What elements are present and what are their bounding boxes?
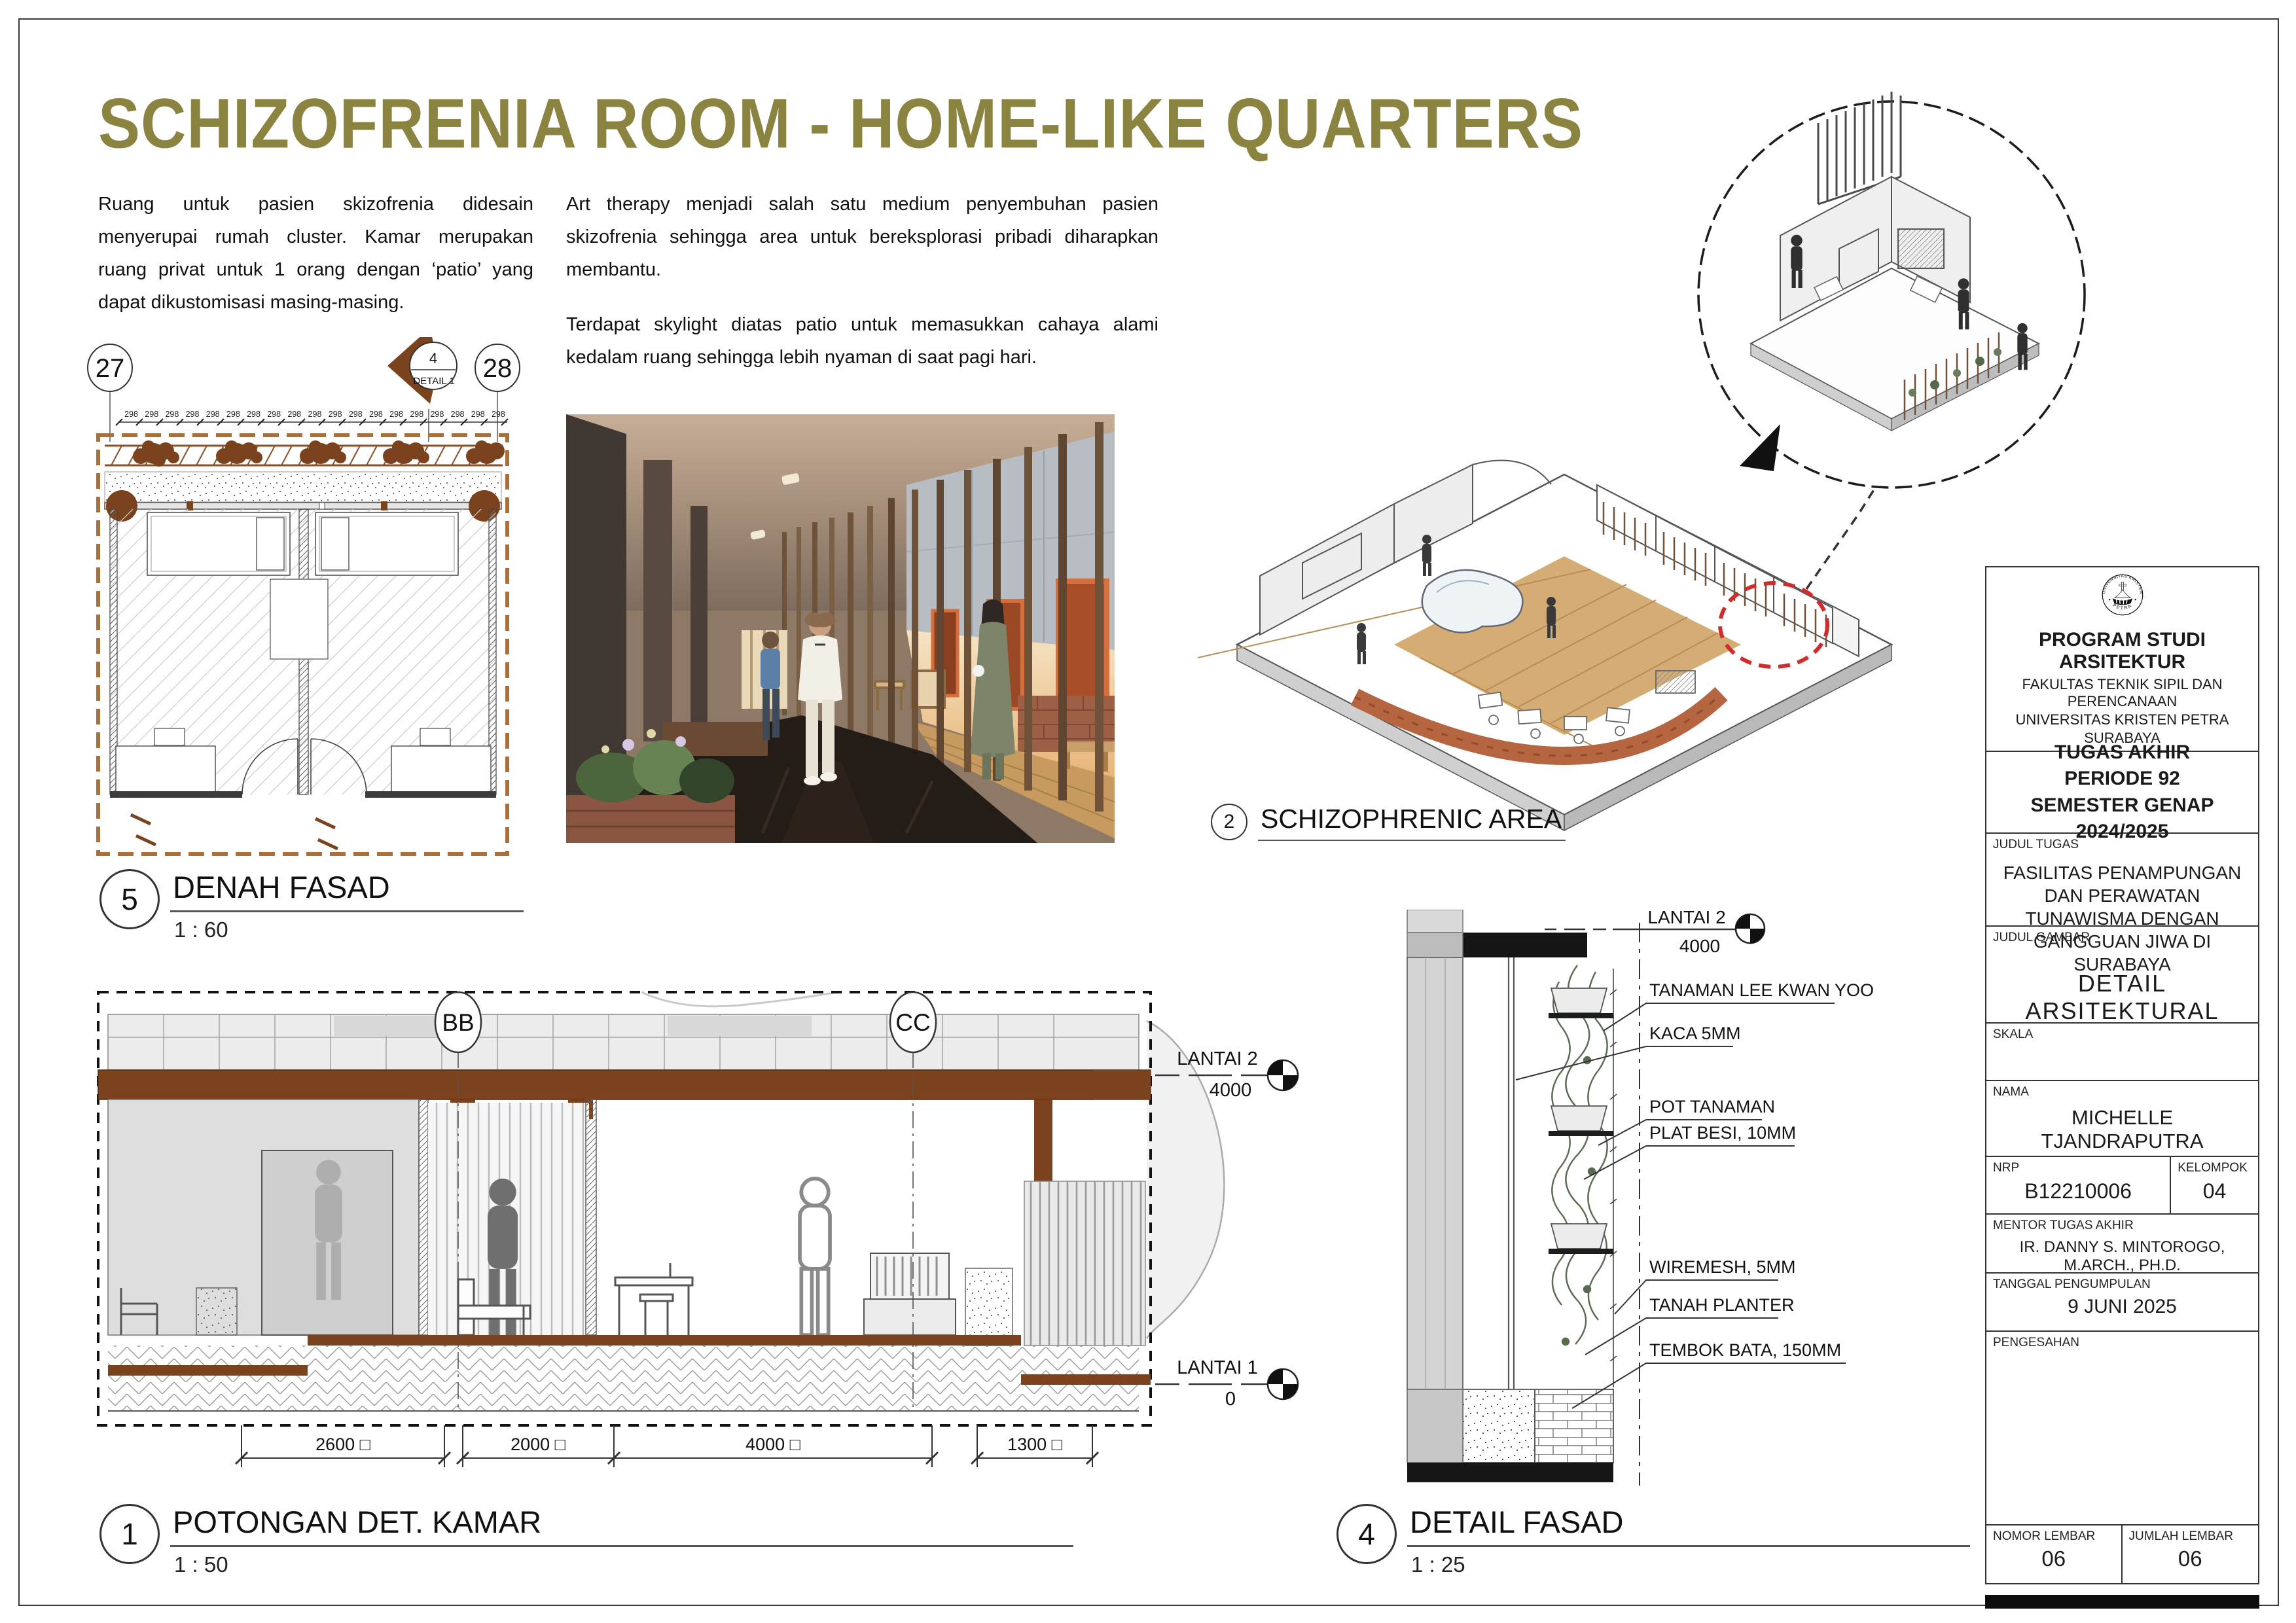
section-title-label: POTONGAN DET. KAMAR — [170, 1504, 1073, 1547]
facade-wall — [1407, 957, 1463, 1389]
section-floor — [108, 1335, 1151, 1411]
facade-title-scale: 1 : 25 — [1407, 1552, 1970, 1577]
titleblock-lembar: NOMOR LEMBAR 06 JUMLAH LEMBAR 06 — [1986, 1525, 2258, 1583]
facade-base — [1407, 1389, 1613, 1482]
assignment-line-1: TUGAS AKHIR — [2054, 740, 2190, 766]
label-jumlah-lembar: JUMLAH LEMBAR — [2129, 1529, 2252, 1544]
kelompok-value: 04 — [2178, 1179, 2251, 1204]
plan-wardrobe — [270, 579, 328, 659]
facade-callout-3: POT TANAMAN — [1649, 1097, 1775, 1117]
plan-title: 5 DENAH FASAD 1 : 60 — [99, 869, 524, 942]
plan-grid-bubble-right: 28 — [475, 344, 520, 391]
mentor-value: IR. DANNY S. MINTOROGO, M.ARCH., PH.D. — [1993, 1238, 2251, 1275]
section-level1-value: 0 — [1175, 1389, 1286, 1410]
svg-text:27: 27 — [96, 354, 125, 383]
nama-value: MICHELLE TJANDRAPUTRA — [1993, 1106, 2251, 1153]
label-nama: NAMA — [1993, 1085, 2251, 1099]
titleblock-nrp-kelompok: NRP B12210006 KELOMPOK 04 — [1986, 1157, 2258, 1215]
plan-top-dimensions: 2982982982982982982982982982982982982982… — [121, 410, 509, 419]
plan-bed-left — [147, 512, 290, 575]
facade-callout-2: KACA 5MM — [1649, 1024, 1741, 1044]
svg-text:CC: CC — [895, 1009, 930, 1036]
facade-title-label: DETAIL FASAD — [1407, 1504, 1970, 1547]
plan-dim-value: 298 — [203, 410, 223, 419]
plan-bushes — [133, 440, 505, 467]
intro-text-1: Ruang untuk pasien skizofrenia didesain … — [98, 188, 533, 319]
section-dim-3: 4000 □ — [708, 1435, 838, 1455]
interior-render-photo — [566, 414, 1115, 843]
label-skala: SKALA — [1993, 1027, 2251, 1042]
section-planter-column — [965, 1268, 1013, 1346]
plan-rooms — [110, 509, 496, 849]
titleblock-program: PROGRAM STUDI ARSITEKTUR — [1993, 629, 2251, 673]
svg-text:4: 4 — [429, 350, 437, 366]
facade-callout-6: TANAH PLANTER — [1649, 1295, 1795, 1315]
titleblock-institution: UNIVERSITAS KRISTEN PETRA PROGRAM STUDI … — [1986, 567, 2258, 752]
intro-paragraph-left: Ruang untuk pasien skizofrenia didesain … — [98, 188, 533, 342]
svg-text:28: 28 — [483, 354, 512, 383]
nrp-value: B12210006 — [1993, 1179, 2163, 1204]
intro-text-2: Art therapy menjadi salah satu medium pe… — [566, 188, 1158, 287]
plan-dim-value: 298 — [366, 410, 386, 419]
plan-title-number: 5 — [99, 869, 160, 929]
plan-dim-value: 298 — [406, 410, 427, 419]
facade-pots — [1549, 988, 1613, 1254]
university-logo: UNIVERSITAS KRISTEN PETRA — [2073, 571, 2172, 618]
section-dim-1: 2600 □ — [278, 1435, 408, 1455]
titleblock-faculty: FAKULTAS TEKNIK SIPIL DAN PERENCANAAN — [1993, 676, 2251, 710]
label-kelompok: KELOMPOK — [2178, 1161, 2251, 1175]
section-desk — [615, 1263, 692, 1335]
section-drawing: BB CC — [92, 982, 1335, 1499]
label-mentor: MENTOR TUGAS AKHIR — [1993, 1219, 2251, 1233]
facade-title: 4 DETAIL FASAD 1 : 25 — [1336, 1504, 1970, 1577]
presentation-board: SCHIZOFRENIA ROOM - HOME-LIKE QUARTERS R… — [0, 0, 2296, 1623]
titleblock-judul-tugas: JUDUL TUGAS FASILITAS PENAMPUNGAN DAN PE… — [1986, 834, 2258, 927]
plan-dim-value: 298 — [223, 410, 243, 419]
label-judul-tugas: JUDUL TUGAS — [1993, 838, 2251, 852]
plan-title-scale: 1 : 60 — [170, 918, 524, 942]
plan-dim-value: 298 — [468, 410, 488, 419]
facade-callout-1: TANAMAN LEE KWAN YOO — [1649, 980, 1874, 1001]
plan-dim-value: 298 — [325, 410, 346, 419]
section-right-fence — [1024, 1181, 1145, 1346]
plan-detail-marker: 4 DETAIL 1 — [387, 337, 457, 404]
facade-level-value: 4000 — [1644, 936, 1755, 957]
tanggal-value: 9 JUNI 2025 — [1993, 1296, 2251, 1318]
titleblock-tanggal: TANGGAL PENGUMPULAN 9 JUNI 2025 — [1986, 1274, 2258, 1332]
plan-corridor-marks — [131, 815, 338, 849]
section-tree-outline — [641, 992, 838, 1007]
titleblock-pengesahan: PENGESAHAN — [1986, 1332, 2258, 1525]
plan-title-label: DENAH FASAD — [170, 869, 524, 912]
assignment-line-2: PERIODE 92 — [2064, 766, 2180, 793]
plan-dim-value: 298 — [121, 410, 141, 419]
plan-dim-value: 298 — [141, 410, 162, 419]
titleblock-assignment: TUGAS AKHIR PERIODE 92 SEMESTER GENAP 20… — [1986, 752, 2258, 834]
facade-callout-7: TEMBOK BATA, 150MM — [1649, 1340, 1841, 1361]
jumlah-lembar-value: 06 — [2129, 1546, 2252, 1571]
section-title-number: 1 — [99, 1504, 160, 1564]
section-clerestory — [108, 1014, 1139, 1070]
plan-bed-right — [315, 512, 458, 575]
label-pengesahan: PENGESAHAN — [1993, 1336, 2251, 1350]
section-level2-name: LANTAI 2 — [1162, 1048, 1273, 1070]
plan-patio-strip — [105, 472, 501, 502]
plan-dim-value: 298 — [162, 410, 182, 419]
svg-text:DETAIL 1: DETAIL 1 — [413, 376, 454, 387]
plan-dim-value: 298 — [284, 410, 304, 419]
section-dim-2: 2000 □ — [473, 1435, 603, 1455]
plan-dim-value: 298 — [264, 410, 284, 419]
axon-title-number: 2 — [1211, 804, 1247, 840]
plan-dim-value: 298 — [427, 410, 447, 419]
plan-grid-bubble-left: 27 — [88, 344, 132, 391]
facade-glass — [1509, 957, 1514, 1389]
intro-text-3: Terdapat skylight diatas patio untuk mem… — [566, 309, 1158, 374]
label-judul-gambar: JUDUL GAMBAR — [1993, 931, 2251, 945]
facade-vines — [1552, 965, 1607, 1345]
titleblock-judul-gambar: JUDUL GAMBAR DETAIL ARSITEKTURAL — [1986, 927, 2258, 1024]
section-level1-name: LANTAI 1 — [1162, 1357, 1273, 1379]
label-nrp: NRP — [1993, 1161, 2163, 1175]
plan-dim-value: 298 — [182, 410, 202, 419]
section-title-scale: 1 : 50 — [170, 1552, 1073, 1577]
detail-bubble — [1682, 65, 2108, 530]
facade-level-name: LANTAI 2 — [1631, 907, 1742, 928]
section-silhouette-outline — [800, 1179, 830, 1335]
plan-dim-value: 298 — [488, 410, 509, 419]
svg-text:BB: BB — [442, 1009, 474, 1036]
facade-slab — [1463, 933, 1587, 957]
section-level2-value: 4000 — [1175, 1080, 1286, 1101]
section-title: 1 POTONGAN DET. KAMAR 1 : 50 — [99, 1504, 1073, 1577]
section-left-hall — [108, 1099, 419, 1335]
titleblock-nama: NAMA MICHELLE TJANDRAPUTRA — [1986, 1081, 2258, 1157]
intro-paragraph-right: Art therapy menjadi salah satu medium pe… — [566, 188, 1158, 396]
facade-callout-5: WIREMESH, 5MM — [1649, 1257, 1796, 1277]
nomor-lembar-value: 06 — [1993, 1546, 2115, 1571]
page-title: SCHIZOFRENIA ROOM - HOME-LIKE QUARTERS — [98, 84, 1636, 164]
axon-title-label: SCHIZOPHRENIC AREA — [1258, 804, 1566, 841]
titleblock-skala: SKALA — [1986, 1024, 2258, 1081]
titleblock-university: UNIVERSITAS KRISTEN PETRA — [2016, 711, 2229, 728]
facade-title-number: 4 — [1336, 1504, 1397, 1564]
label-nomor-lembar: NOMOR LEMBAR — [1993, 1529, 2115, 1544]
section-bed — [864, 1253, 956, 1335]
plan-dim-value: 298 — [304, 410, 325, 419]
plan-dim-value: 298 — [386, 410, 406, 419]
titleblock-mentor: MENTOR TUGAS AKHIR IR. DANNY S. MINTOROG… — [1986, 1215, 2258, 1274]
axon-title: 2 SCHIZOPHRENIC AREA — [1211, 804, 1566, 841]
title-block: UNIVERSITAS KRISTEN PETRA PROGRAM STUDI … — [1985, 566, 2259, 1584]
facade-wiremesh — [1610, 969, 1617, 1387]
judul-gambar-value: DETAIL ARSITEKTURAL — [1993, 970, 2251, 1025]
plan-dim-value: 298 — [243, 410, 264, 419]
section-dim-4: 1300 □ — [969, 1435, 1100, 1455]
plan-dim-value: 298 — [448, 410, 468, 419]
facade-callout-4: PLAT BESI, 10MM — [1649, 1123, 1796, 1143]
plan-dim-value: 298 — [346, 410, 366, 419]
titleblock-bottom-bar — [1985, 1595, 2259, 1609]
label-tanggal: TANGGAL PENGUMPULAN — [1993, 1277, 2251, 1292]
